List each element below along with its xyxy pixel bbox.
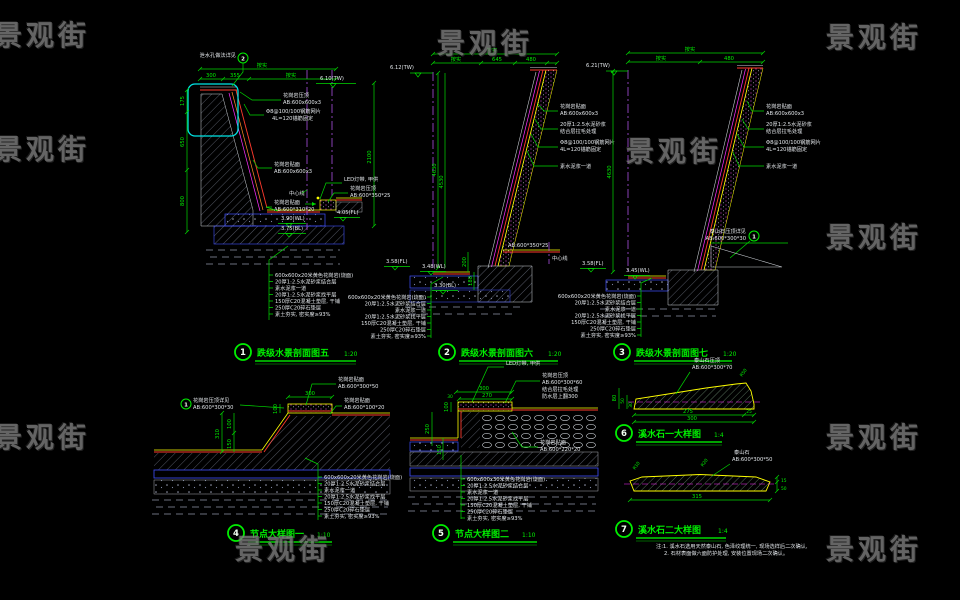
material-label: AB:600x600x3 — [560, 111, 598, 117]
note-line: 600x600x20米黄色花岗岩(烧面) — [558, 292, 636, 300]
note-line: 150厚C20混凝土垫层, 干铺 — [324, 499, 389, 507]
dim-label: 50 — [781, 486, 787, 492]
note-line: 250厚C20碎石垫层 — [324, 506, 370, 514]
dim-label: 270 — [482, 393, 492, 399]
level-label: 3.45(WL) — [626, 268, 650, 274]
material-label: 花岗岩压顶 — [283, 91, 309, 99]
material-label: LED灯带, 甲供 — [344, 175, 378, 183]
material-label: AB:600*100*20 — [344, 405, 384, 411]
detail-title: 节点大样图一 — [250, 528, 304, 540]
note-line: 素土夯实, 密实度≥93% — [275, 310, 331, 318]
callout-number: 2 — [241, 56, 245, 62]
dim-label: 25 — [746, 409, 752, 415]
material-label: AB:600*350*25 — [350, 193, 390, 199]
note-line: 20厚1:2.5水泥砂浆找平层 — [324, 493, 385, 501]
centerline-label: 中心线 — [552, 254, 568, 262]
material-label: LED灯带, 甲供 — [506, 359, 540, 367]
detail-number: 1 — [240, 348, 246, 358]
level-label: 6.21(TW) — [586, 63, 610, 69]
level-label: 3.48(WL) — [422, 264, 446, 270]
detail-4-node: 1 花岗岩压顶详见 AB:600*300*30 花岗岩贴面 AB:600*300… — [152, 375, 402, 545]
detail-scale: 1:10 — [317, 532, 331, 539]
dim-label: 315 — [692, 494, 702, 500]
level-label: 3.75(BL) — [281, 226, 303, 232]
detail-number: 7 — [621, 525, 627, 535]
dim-label: 30 — [447, 394, 453, 400]
dim-label: 800 — [180, 196, 186, 206]
dim-label: 180 — [468, 276, 474, 286]
level-label: 6.12(TW) — [390, 65, 414, 71]
material-label: 花岗岩贴面 — [344, 396, 370, 404]
material-label: 泰山石 — [734, 448, 750, 456]
level-label: 3.58(FL) — [386, 259, 407, 265]
detail-number: 5 — [438, 529, 444, 539]
detail-scale: 1:20 — [548, 351, 562, 358]
material-label: 花岗岩贴面 — [338, 375, 364, 383]
material-label: Φ8@100/100钢筋网片 — [266, 107, 321, 115]
material-label: AB:600x600x3 — [274, 169, 312, 175]
note-line: 20厚1:2.5水泥砂浆结合层 — [467, 482, 528, 490]
material-label: 花岗岩压顶 — [350, 184, 376, 192]
note-line: 600x600x20米黄色花岗岩(烧面) — [324, 473, 402, 481]
material-label: 花岗岩贴面 — [274, 198, 300, 206]
detail-number: 6 — [621, 429, 627, 439]
note-line: 150厚C20混凝土垫层, 干铺 — [571, 318, 636, 326]
dim-label: 按实 — [257, 61, 267, 69]
pebble-layer — [480, 414, 598, 448]
detail-title: 溪水石一大样图 — [638, 428, 701, 440]
note-line: 150厚C20混凝土垫层, 干铺 — [275, 297, 340, 305]
dim-label: 按实 — [286, 71, 296, 79]
level-label: 3.58(FL) — [582, 261, 603, 267]
material-label: 4L=120锚筋固定 — [766, 145, 807, 153]
note-line: 20厚1:2.5水泥砂浆结合层 — [275, 278, 336, 286]
material-label: 20厚1:2.5水泥砂浆 — [766, 120, 812, 128]
dim-label: 300 — [479, 386, 489, 392]
dim-label: 15 — [781, 478, 787, 484]
detail-scale: 1:10 — [522, 532, 536, 539]
detail-number: 4 — [233, 529, 239, 539]
note-line: 20厚1:2.5水泥砂浆找平层 — [575, 312, 636, 320]
dim-label: 480 — [526, 57, 536, 63]
detail-scale: 1:4 — [718, 528, 728, 535]
dim-label: 300 — [206, 73, 216, 79]
material-label: AB:600x600x3 — [283, 100, 321, 106]
dim-label: 4530 — [439, 175, 445, 188]
earth-hatch-area — [201, 94, 253, 226]
detail-6-stone: 泰山石压顶 AB:600*300*70 275 25 300 80 50 30 … — [612, 356, 760, 445]
note-line: 素水泥浆一道 — [324, 486, 355, 494]
dim-label: 100 — [273, 404, 279, 414]
note-line: 20厚1:2.5水泥砂浆找平层 — [275, 291, 336, 299]
dim-label: 100 — [227, 419, 233, 429]
dim-label: R10 — [632, 460, 642, 471]
note-line: 素土夯实, 密实度≥93% — [467, 514, 523, 522]
detail-1-section: 按实 300 355 按实 泄水孔做法详见 2 6.10(TW) 175 650… — [180, 51, 390, 364]
note-line: 250厚C20碎石垫层 — [590, 325, 636, 333]
level-label: 3.30(BL) — [434, 283, 456, 289]
note-line: 素土夯实, 密实度≥93% — [371, 332, 427, 340]
note-line: 20厚1:2.5水泥砂浆找平层 — [467, 495, 528, 503]
dim-label: 按实 — [685, 45, 695, 53]
detail-scale: 1:20 — [344, 351, 358, 358]
note-line: 素水泥浆一道 — [395, 306, 426, 314]
detail-5-node: LED灯带, 甲供 花岗岩压顶 AB:600*300*60 结合层拉毛处理 防水… — [408, 359, 600, 545]
dim-label: 150 — [437, 445, 443, 455]
dim-label: R20 — [700, 457, 710, 468]
led-strip-dot — [317, 197, 320, 200]
dim-label: 300 — [305, 391, 315, 397]
general-note: 注:1. 溪水石选用天然泰山石, 色泽纹理统一, 现场选样后二次确认, — [656, 542, 808, 550]
detail-title: 节点大样图二 — [455, 528, 509, 540]
material-label: 泰山石压顶 — [694, 356, 720, 364]
dim-label: 300 — [687, 416, 697, 422]
material-label: 素水泥浆一道 — [560, 162, 591, 170]
dim-label: 按实 — [487, 46, 497, 54]
note-line: 20厚1:2.5水泥砂浆结合层 — [575, 299, 636, 307]
material-label: AB:600*300*50 — [338, 384, 378, 390]
dim-label: 50 — [620, 398, 626, 404]
material-label: AB:600*350*25 — [508, 243, 548, 249]
note-line: 250厚C20碎石垫层 — [275, 304, 321, 312]
material-label: 花岗岩压顶 — [542, 371, 568, 379]
dim-label: 650 — [180, 137, 186, 147]
material-label: 20厚1:2.5水泥砂浆 — [560, 120, 606, 128]
callout-label: 泰山石压顶详见 — [710, 227, 746, 235]
detail-number: 2 — [444, 348, 450, 358]
detail-scale: 1:20 — [723, 351, 737, 358]
detail-3-section: 按实 按实 480 6.21(TW) 4630 花岗岩贴面 AB:600x600… — [558, 45, 821, 364]
granite-face-band — [498, 70, 557, 266]
callout-label: 花岗岩压顶详见 — [193, 396, 229, 404]
material-label: 结合层拉毛处理 — [766, 127, 803, 135]
dim-label: 4630 — [607, 165, 613, 178]
cad-linework: 按实 300 355 按实 泄水孔做法详见 2 6.10(TW) 175 650… — [0, 0, 960, 600]
general-note: 2. 石材表面做六面防护处理, 安装位置现场二次确认。 — [664, 549, 788, 557]
dim-label: 30 — [628, 402, 634, 408]
dim-label: 4630 — [432, 163, 438, 176]
dim-label: 275 — [683, 409, 693, 415]
stream-stone-1 — [634, 383, 754, 409]
material-label: 花岗岩贴面 — [274, 160, 300, 168]
note-line: 600x600x20米黄色花岗岩(烧面) — [348, 293, 426, 301]
material-label: 防水层上翻300 — [542, 392, 578, 400]
level-label: 3.90(WL) — [281, 216, 305, 222]
callout-label: 泄水孔做法详见 — [200, 51, 236, 59]
material-label: 4L=120锚筋固定 — [272, 114, 313, 122]
dim-label: 645 — [492, 57, 502, 63]
detail-title: 溪水石二大样图 — [638, 524, 701, 536]
detail-scale: 1:4 — [714, 432, 724, 439]
note-line: 150厚C20混凝土垫层, 干铺 — [361, 319, 426, 327]
note-line: 素土夯实, 密实度≥93% — [581, 331, 637, 339]
material-label: 结合层拉毛处理 — [542, 385, 579, 393]
dim-label: 310 — [215, 429, 221, 439]
material-label: AB:600*300*60 — [542, 380, 582, 386]
note-line: 素水泥浆一道 — [605, 305, 636, 313]
dim-label: 250 — [425, 424, 431, 434]
detail-title: 跌级水景剖面图六 — [461, 347, 533, 359]
detail-title: 跌级水景剖面图五 — [257, 347, 329, 359]
material-label: AB:600*300*70 — [692, 365, 732, 371]
note-line: 20厚1:2.5水泥砂浆找平层 — [365, 313, 426, 321]
note-line: 600x600x30米黄色花岗岩(烧面) — [467, 475, 545, 483]
level-label: 6.10(TW) — [320, 76, 344, 82]
material-label: AB:600*220*20 — [540, 447, 580, 453]
dim-label: 150 — [227, 439, 233, 449]
dim-label: 按实 — [451, 55, 461, 63]
material-label: AB:600*310*20 — [274, 207, 314, 213]
material-label: Φ8@100/100钢筋网片 — [560, 138, 615, 146]
detail-7-stone: 泰山石 AB:600*300*50 R10 R20 315 15 50 7 溪水… — [616, 448, 808, 557]
note-line: 20厚1:2.5水泥砂浆结合层 — [324, 480, 385, 488]
dim-label: 2100 — [367, 150, 373, 163]
level-label: 4.05(FL) — [337, 210, 358, 216]
dim-label: R50 — [739, 367, 749, 378]
cad-drawing-sheet: 景观街 景观街 景观街 景观街 景观街 景观街 景观街 景观街 景观街 景观街 — [0, 0, 960, 600]
callout-label: AB:600*300*30 — [193, 405, 233, 411]
note-line: 250厚C20碎石垫层 — [467, 508, 513, 516]
note-line: 20厚1:2.5水泥砂浆结合层 — [365, 300, 426, 308]
callout-number: 1 — [184, 402, 188, 408]
material-label: 花岗岩贴面 — [560, 102, 586, 110]
material-label: 花岗岩贴面 — [540, 438, 566, 446]
dim-label: 80 — [612, 395, 618, 402]
detail-number: 3 — [619, 348, 625, 358]
note-line: 150厚C20混凝土垫层, 干铺 — [467, 501, 532, 509]
dim-label: 200 — [462, 257, 468, 267]
material-label: 花岗岩贴面 — [766, 102, 792, 110]
note-line: 素水泥浆一道 — [467, 488, 498, 496]
dim-label: 按实 — [656, 54, 666, 62]
dim-label: 100 — [444, 402, 450, 412]
material-label: 结合层拉毛处理 — [560, 127, 597, 135]
stream-stone-2 — [630, 475, 770, 492]
note-line: 素水泥浆一道 — [275, 284, 306, 292]
callout-number: 1 — [752, 234, 756, 240]
callout-label: AB:600*300*30 — [706, 236, 746, 242]
material-label: Φ8@100/100钢筋网片 — [766, 138, 821, 146]
material-label: AB:600x600x3 — [766, 111, 804, 117]
material-label: AB:600*300*50 — [732, 457, 772, 463]
dim-label: 175 — [180, 96, 186, 106]
note-line: 250厚C20碎石垫层 — [380, 326, 426, 334]
note-line: 600x600x20米黄色花岗岩(烧面) — [275, 271, 353, 279]
dim-label: 480 — [724, 56, 734, 62]
material-label: 4L=120锚筋固定 — [560, 145, 601, 153]
material-label: 素水泥浆一道 — [766, 162, 797, 170]
note-line: 素土夯实, 密实度≥93% — [324, 512, 380, 520]
